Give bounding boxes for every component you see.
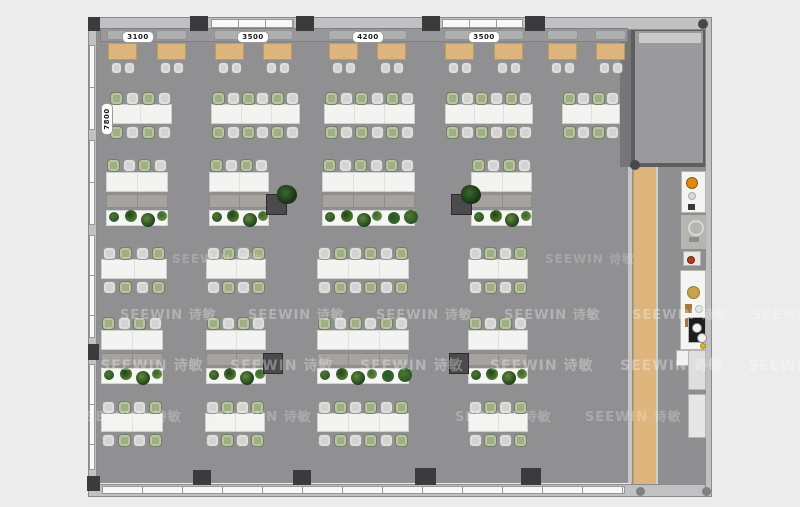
office-chair [364, 434, 377, 447]
office-chair [401, 159, 414, 172]
office-chair [251, 434, 264, 447]
plant [109, 212, 119, 222]
office-chair [563, 126, 576, 139]
meeting-table [106, 172, 168, 192]
booth-table [548, 43, 577, 60]
office-chair [142, 126, 155, 139]
office-chair [323, 159, 336, 172]
structural-column [87, 476, 100, 491]
office-chair [318, 434, 331, 447]
office-chair [149, 434, 162, 447]
floor-plant [461, 185, 481, 204]
watermark: SEEWIN 诗敏 [504, 304, 601, 323]
office-chair [102, 317, 115, 330]
appliance-detail [686, 177, 698, 189]
watermark: SEEWIN 诗敏 [748, 355, 800, 375]
plant [157, 211, 167, 221]
office-chair [318, 281, 331, 294]
booth-chair [612, 62, 623, 74]
pantry-appliance [688, 394, 706, 438]
office-chair [340, 126, 353, 139]
booth-sofa-cushion [595, 30, 626, 40]
office-chair [221, 434, 234, 447]
meeting-table [317, 330, 409, 350]
booth-table [596, 43, 625, 60]
booth-table [494, 43, 523, 60]
booth-chair [279, 62, 290, 74]
appliance-detail [687, 286, 700, 299]
office-chair [136, 247, 149, 260]
office-chair [518, 159, 531, 172]
office-chair [364, 247, 377, 260]
office-chair [118, 434, 131, 447]
office-chair [256, 92, 269, 105]
office-chair [240, 159, 253, 172]
dimension-label: 3500 [237, 31, 269, 43]
office-chair [469, 434, 482, 447]
booth-sofa-cushion [547, 30, 578, 40]
office-chair [514, 281, 527, 294]
round-column [636, 487, 645, 496]
pantry-appliance [681, 171, 706, 213]
plant [243, 213, 257, 227]
booth-sofa-cushion [156, 30, 187, 40]
booth-chair [332, 62, 343, 74]
structural-column [525, 16, 545, 31]
watermark: SEEWIN 诗敏 [215, 406, 312, 425]
office-chair [380, 281, 393, 294]
booth-chair [173, 62, 184, 74]
meeting-table [317, 413, 409, 432]
office-chair [606, 92, 619, 105]
office-chair [446, 92, 459, 105]
office-chair [519, 126, 532, 139]
office-chair [152, 247, 165, 260]
office-chair [222, 281, 235, 294]
top-right-room [631, 27, 707, 167]
office-chair [334, 281, 347, 294]
floor-plant [277, 185, 297, 204]
plant [141, 213, 155, 227]
office-chair [505, 126, 518, 139]
office-chair [364, 401, 377, 414]
appliance-detail [687, 256, 695, 264]
watermark: SEEWIN 诗敏 [100, 355, 203, 375]
office-chair [255, 159, 268, 172]
office-chair [355, 126, 368, 139]
office-chair [386, 126, 399, 139]
watermark: SEEWIN 诗敏 [172, 250, 262, 267]
office-chair [484, 317, 497, 330]
meeting-table [108, 104, 172, 124]
office-chair [475, 126, 488, 139]
office-chair [212, 126, 225, 139]
dimension-label: 3500 [468, 31, 500, 43]
appliance-detail [688, 220, 704, 236]
office-chair [499, 281, 512, 294]
round-column [698, 19, 708, 29]
watermark: SEEWIN 诗敏 [490, 355, 593, 375]
booth-chair [345, 62, 356, 74]
booth-chair [461, 62, 472, 74]
office-chair [318, 247, 331, 260]
office-chair [446, 126, 459, 139]
office-chair [138, 159, 151, 172]
booth-chair [497, 62, 508, 74]
meeting-table [471, 172, 532, 192]
office-chair [380, 401, 393, 414]
partition-wall-lower [628, 167, 632, 483]
office-chair [349, 281, 362, 294]
appliance-detail [700, 343, 706, 349]
office-chair [207, 281, 220, 294]
plant [357, 213, 371, 227]
office-chair [123, 159, 136, 172]
office-chair [154, 159, 167, 172]
office-chair [212, 92, 225, 105]
booth-table [157, 43, 186, 60]
window-glazing [89, 45, 95, 130]
office-chair [484, 247, 497, 260]
office-chair [364, 281, 377, 294]
plant [471, 370, 481, 380]
office-chair [469, 247, 482, 260]
office-chair [222, 317, 235, 330]
appliance-detail [688, 192, 696, 200]
meeting-table [468, 330, 528, 350]
office-chair [206, 434, 219, 447]
office-chair [395, 434, 408, 447]
window-glazing [442, 19, 523, 28]
office-chair [401, 126, 414, 139]
office-chair [256, 126, 269, 139]
booth-chair [380, 62, 391, 74]
watermark: SEEWIN 诗敏 [632, 304, 729, 323]
structural-column [293, 470, 311, 485]
office-chair [592, 92, 605, 105]
round-column [630, 160, 640, 170]
office-chair [286, 126, 299, 139]
meeting-table [562, 104, 620, 124]
office-chair [514, 434, 527, 447]
office-chair [103, 281, 116, 294]
office-chair [475, 92, 488, 105]
office-chair [371, 126, 384, 139]
booth-chair [448, 62, 459, 74]
watermark: SEEWIN 诗敏 [360, 355, 463, 375]
plant [209, 370, 219, 380]
booth-table [377, 43, 406, 60]
meeting-table [322, 172, 415, 192]
room-sideboard [639, 33, 701, 43]
plant [336, 368, 348, 380]
watermark: SEEWIN 诗敏 [752, 304, 800, 323]
meeting-table [211, 104, 300, 124]
office-chair [499, 247, 512, 260]
meeting-table [468, 259, 528, 279]
plant [125, 210, 137, 222]
booth-chair [510, 62, 521, 74]
window-glazing [102, 486, 625, 494]
booth-table [445, 43, 474, 60]
office-chair [110, 92, 123, 105]
office-chair [395, 281, 408, 294]
office-chair [325, 92, 338, 105]
office-chair [385, 159, 398, 172]
plant [521, 211, 531, 221]
pantry-appliance [683, 251, 701, 266]
office-chair [354, 159, 367, 172]
office-chair [158, 126, 171, 139]
office-chair [225, 159, 238, 172]
office-chair [380, 247, 393, 260]
office-chair [252, 281, 265, 294]
office-chair [103, 247, 116, 260]
booth-chair [124, 62, 135, 74]
meeting-table [317, 259, 409, 279]
office-chair [334, 401, 347, 414]
appliance-detail [688, 204, 695, 210]
meeting-table [445, 104, 533, 124]
booth-table [263, 43, 292, 60]
office-chair [461, 126, 474, 139]
office-chair [286, 92, 299, 105]
watermark: SEEWIN 诗敏 [455, 406, 552, 425]
plant [341, 210, 353, 222]
office-chair [126, 126, 139, 139]
watermark: SEEWIN 诗敏 [376, 304, 473, 323]
booth-chair [160, 62, 171, 74]
plant [490, 210, 502, 222]
office-chair [461, 92, 474, 105]
dimension-label-vertical: 7800 [101, 103, 113, 135]
office-chair [386, 92, 399, 105]
pantry-appliance [681, 215, 706, 249]
dimension-label: 3100 [122, 31, 154, 43]
office-chair [271, 92, 284, 105]
plant [325, 212, 335, 222]
structural-column [88, 17, 100, 31]
storage-cabinet-row [106, 194, 168, 208]
office-chair [136, 281, 149, 294]
office-chair [395, 401, 408, 414]
office-chair [355, 92, 368, 105]
meeting-table [209, 172, 269, 192]
booth-table [108, 43, 137, 60]
watermark: SEEWIN 诗敏 [620, 355, 723, 375]
office-chair [236, 434, 249, 447]
office-chair [563, 92, 576, 105]
structural-column [422, 16, 440, 31]
office-chair [339, 159, 352, 172]
watermark: SEEWIN 诗敏 [585, 406, 682, 425]
office-chair [577, 92, 590, 105]
office-chair [126, 92, 139, 105]
floor-plan: 3100 3500 4200 3500 7800 SEEWIN 诗敏SEEWIN… [0, 0, 800, 507]
office-chair [318, 401, 331, 414]
office-chair [242, 92, 255, 105]
office-chair [490, 126, 503, 139]
office-chair [325, 126, 338, 139]
plant [404, 210, 418, 224]
booth-table [215, 43, 244, 60]
office-chair [242, 126, 255, 139]
booth-chair [111, 62, 122, 74]
structural-column [296, 16, 314, 31]
office-chair [349, 401, 362, 414]
office-chair [484, 434, 497, 447]
storage-cabinet-row [322, 194, 415, 208]
structural-column [190, 16, 208, 31]
appliance-detail [689, 237, 699, 242]
booth-chair [564, 62, 575, 74]
round-column [702, 487, 711, 496]
office-chair [514, 247, 527, 260]
office-chair [592, 126, 605, 139]
plant [212, 212, 222, 222]
office-chair [142, 92, 155, 105]
booth-chair [393, 62, 404, 74]
window-glazing [89, 140, 95, 225]
booth-chair [231, 62, 242, 74]
booth-chair [599, 62, 610, 74]
office-chair [119, 281, 132, 294]
office-chair [119, 247, 132, 260]
office-chair [227, 92, 240, 105]
office-chair [577, 126, 590, 139]
office-chair [519, 92, 532, 105]
booth-chair [266, 62, 277, 74]
watermark: SEEWIN 诗敏 [85, 406, 182, 425]
booth-table [329, 43, 358, 60]
meeting-table [101, 259, 167, 279]
office-chair [484, 281, 497, 294]
office-chair [380, 434, 393, 447]
structural-column [521, 468, 541, 485]
office-chair [503, 159, 516, 172]
office-chair [472, 159, 485, 172]
office-chair [158, 92, 171, 105]
office-chair [237, 281, 250, 294]
office-chair [349, 247, 362, 260]
window-glazing [89, 235, 95, 338]
watermark: SEEWIN 诗敏 [248, 304, 345, 323]
plant [474, 212, 484, 222]
office-chair [340, 92, 353, 105]
office-chair [349, 317, 362, 330]
office-chair [401, 92, 414, 105]
watermark: SEEWIN 诗敏 [230, 355, 333, 375]
office-chair [334, 247, 347, 260]
structural-column [193, 470, 211, 485]
office-chair [499, 434, 512, 447]
office-chair [102, 434, 115, 447]
right-wall [705, 17, 712, 497]
appliance-detail [697, 333, 707, 343]
watermark: SEEWIN 诗敏 [120, 304, 217, 323]
office-chair [133, 434, 146, 447]
window-glazing [211, 19, 294, 28]
booth-chair [551, 62, 562, 74]
office-chair [152, 281, 165, 294]
office-chair [349, 434, 362, 447]
meeting-table [206, 330, 266, 350]
office-chair [334, 434, 347, 447]
office-chair [490, 92, 503, 105]
office-chair [505, 92, 518, 105]
office-chair [210, 159, 223, 172]
meeting-table [101, 330, 163, 350]
office-chair [395, 247, 408, 260]
office-chair [370, 159, 383, 172]
office-chair [107, 159, 120, 172]
booth-chair [218, 62, 229, 74]
storage-cabinet-row [209, 194, 269, 208]
structural-column [88, 344, 99, 360]
office-chair [371, 92, 384, 105]
dimension-label: 4200 [352, 31, 384, 43]
meeting-table [324, 104, 415, 124]
office-chair [227, 126, 240, 139]
watermark: SEEWIN 诗敏 [545, 250, 635, 267]
appliance-detail [692, 323, 702, 333]
office-chair [271, 126, 284, 139]
office-chair [606, 126, 619, 139]
office-chair [469, 281, 482, 294]
wood-walkway [633, 165, 658, 487]
structural-column [415, 468, 436, 485]
office-chair [487, 159, 500, 172]
